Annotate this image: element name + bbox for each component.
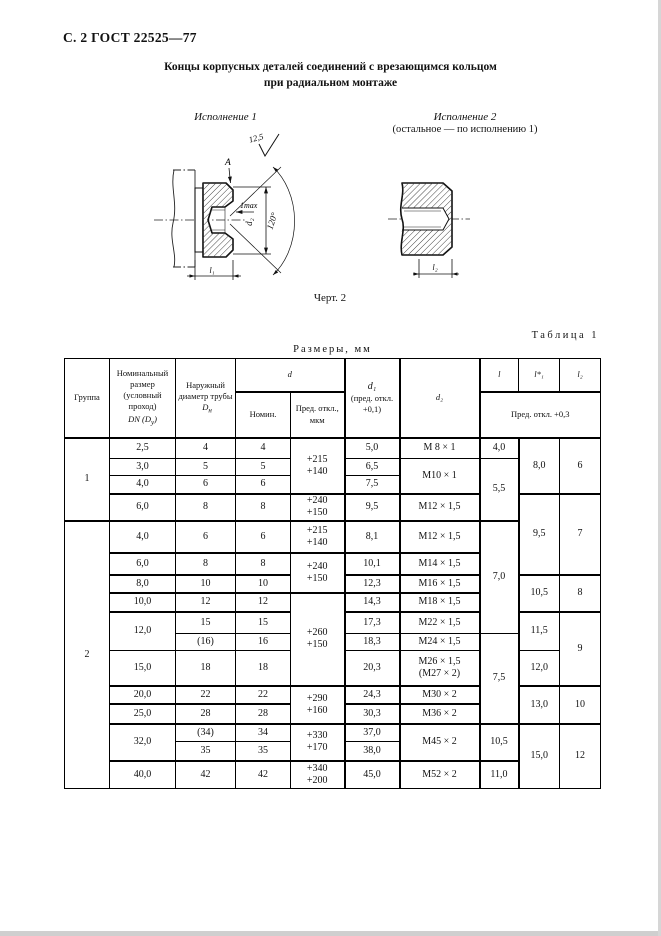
dimensions-table: Группа Номинальный размер (условный прох… [64,358,601,789]
cell-d1: 38,0 [345,742,400,761]
cell-d-nom: 6 [236,521,291,553]
col-header-nominal: Номинальный размер (условный проход) DN … [110,359,176,438]
svg-text:d₂: d₂ [244,218,254,226]
dimension-l2: l₂ [413,259,459,278]
col-header-d-deviation: Пред. откл., мкм [291,392,345,438]
cell-d-nom: 35 [236,742,291,761]
figure-caption: Черт. 2 [270,292,390,304]
header-row-1: Группа Номинальный размер (условный прох… [65,359,601,392]
cell-nominal: 12,0 [110,612,176,651]
cell-l2: 6 [560,438,601,494]
col-header-l1: l*₁ [519,359,560,392]
cell-d1: 10,1 [345,553,400,575]
housing-phantom-outline [172,170,195,267]
col-header-l-deviation: Пред. откл. +0,3 [480,392,601,438]
cell-d-nom: 16 [236,634,291,651]
hatch-upper [203,183,233,220]
cell-outer: 22 [176,686,236,704]
cell-nominal: 6,0 [110,494,176,521]
table-row: 20,0 22 22 +290 +160 24,3 М30 × 2 13,0 1… [65,686,601,704]
cell-l1: 10,5 [519,575,560,612]
variant-2-note: (остальное — по исполнению 1) [354,124,576,135]
svg-text:1max: 1max [240,201,258,210]
cell-l2: 12 [560,724,601,789]
cell-outer: (34) [176,724,236,742]
cell-d-nom: 4 [236,438,291,459]
cell-d-nom: 8 [236,494,291,521]
cell-nominal: 8,0 [110,575,176,593]
cell-d-nom: 22 [236,686,291,704]
cell-d1: 17,3 [345,612,400,634]
cell-d-dev: +330 +170 [291,724,345,761]
cell-d1: 37,0 [345,724,400,742]
cell-d1: 24,3 [345,686,400,704]
cell-l1: 8,0 [519,438,560,494]
hatch-lower [203,220,233,257]
cell-d2: М14 × 1,5 [400,553,480,575]
cell-d-dev: +240 +150 [291,494,345,521]
cell-l: 10,5 [480,724,519,761]
table-units-note: Размеры, мм [65,344,600,355]
cell-d-nom: 42 [236,761,291,789]
cell-outer: (16) [176,634,236,651]
drawing-variant-1: 1max А 12,5 d₂ 120° l₁ [140,128,310,308]
dimension-one-max: 1max [236,201,258,212]
table-caption: Таблица 1 [532,330,599,341]
cell-d2: М22 × 1,5 [400,612,480,634]
cell-d2: М26 × 1,5 (М27 × 2) [400,651,480,686]
page-header: С. 2 ГОСТ 22525—77 [63,30,197,46]
cell-d-nom: 5 [236,459,291,476]
cell-l: 5,5 [480,459,519,521]
cell-d-nom: 10 [236,575,291,593]
cell-outer: 28 [176,704,236,724]
cell-l2: 8 [560,575,601,612]
cell-d-dev: +240 +150 [291,553,345,593]
cell-d2: М24 × 1,5 [400,634,480,651]
svg-text:l₁: l₁ [209,265,214,275]
cell-l2: 7 [560,494,601,575]
cell-d2: М12 × 1,5 [400,521,480,553]
table-row: 1 2,5 4 4 +215 +140 5,0 М 8 × 1 4,0 8,0 … [65,438,601,459]
col-header-d2: d₂ [400,359,480,438]
cell-d-nom: 18 [236,651,291,686]
cell-d1: 9,5 [345,494,400,521]
table-row: 6,0 8 8 +240 +150 9,5 М12 × 1,5 9,5 7 [65,494,601,521]
cell-outer: 5 [176,459,236,476]
cell-nominal: 10,0 [110,593,176,612]
cell-outer: 15 [176,612,236,634]
cell-nominal: 4,0 [110,521,176,553]
cell-d1: 18,3 [345,634,400,651]
cell-nominal: 15,0 [110,651,176,686]
nut-section [195,183,233,257]
body-section [401,183,452,255]
cell-d1: 30,3 [345,704,400,724]
svg-text:l₂: l₂ [432,262,437,272]
cell-outer: 35 [176,742,236,761]
cell-nominal: 32,0 [110,724,176,761]
cell-outer: 10 [176,575,236,593]
cell-nominal: 3,0 [110,459,176,476]
variant-1-label: Исполнение 1 [148,111,303,123]
cell-d2: М45 × 2 [400,724,480,761]
dimension-l1: l₁ [187,260,241,280]
cell-d-nom: 12 [236,593,291,612]
cell-d1: 45,0 [345,761,400,789]
drawing-variant-2: l₂ [382,150,492,285]
dimension-d2: d₂ [233,187,271,254]
variant-2-label: Исполнение 2 [384,111,546,123]
cell-nominal: 20,0 [110,686,176,704]
cell-d2: М30 × 2 [400,686,480,704]
cell-l1: 12,0 [519,651,560,686]
dimension-angle-120: 120° [230,167,295,275]
cell-outer: 4 [176,438,236,459]
cell-outer: 6 [176,521,236,553]
doc-title-line2: при радиальном монтаже [0,76,661,92]
cell-l: 4,0 [480,438,519,459]
cell-outer: 8 [176,494,236,521]
cell-d-nom: 34 [236,724,291,742]
col-header-d-nominal: Номин. [236,392,291,438]
cell-l1: 9,5 [519,494,560,575]
svg-text:А: А [224,158,231,168]
cell-l: 7,0 [480,521,519,634]
cell-l1: 13,0 [519,686,560,724]
cell-d2: М52 × 2 [400,761,480,789]
doc-title-line1: Концы корпусных деталей соединений с вре… [0,60,661,76]
cell-nominal: 6,0 [110,553,176,575]
cell-outer: 12 [176,593,236,612]
cell-l: 11,0 [480,761,519,789]
cell-d2: М18 × 1,5 [400,593,480,612]
col-header-d: d [236,359,345,392]
d1-note: (пред. откл. +0,1) [351,393,393,414]
cell-nominal: 25,0 [110,704,176,724]
roughness-icon: 12,5 [248,131,279,156]
cell-d1: 20,3 [345,651,400,686]
cell-d2: М 8 × 1 [400,438,480,459]
col-header-group: Группа [65,359,110,438]
cell-d1: 7,5 [345,476,400,494]
cell-outer: 8 [176,553,236,575]
svg-text:12,5: 12,5 [248,131,265,145]
cell-l1: 11,5 [519,612,560,651]
cell-d2: М36 × 2 [400,704,480,724]
cell-d1: 12,3 [345,575,400,593]
cell-l2: 10 [560,686,601,724]
cell-outer: 42 [176,761,236,789]
cell-l1: 15,0 [519,724,560,789]
cell-nominal: 4,0 [110,476,176,494]
cell-outer: 18 [176,651,236,686]
nominal-symbol: DN (Dу) [112,414,173,428]
cell-d-nom: 6 [236,476,291,494]
cell-d-nom: 8 [236,553,291,575]
cell-d2: М10 × 1 [400,459,480,494]
cell-d-dev: +215 +140 [291,438,345,494]
cell-d-nom: 28 [236,704,291,724]
cell-l2: 9 [560,612,601,686]
cell-outer: 6 [176,476,236,494]
cell-d1: 5,0 [345,438,400,459]
outer-header-text: Наружный диаметр трубы [178,380,232,401]
cell-d-dev: +340 +200 [291,761,345,789]
table-row: 32,0 (34) 34 +330 +170 37,0 М45 × 2 10,5… [65,724,601,742]
gost-document-page: С. 2 ГОСТ 22525—77 Концы корпусных детал… [0,0,661,936]
cell-l: 7,5 [480,634,519,724]
break-line-wavy [172,170,175,267]
doc-title: Концы корпусных деталей соединений с вре… [0,60,661,91]
view-a-label: А [224,158,231,183]
d1-symbol: d₁ [348,380,397,393]
cell-d1: 8,1 [345,521,400,553]
cell-group: 2 [65,521,110,789]
cell-d-dev: +290 +160 [291,686,345,724]
cell-d-nom: 15 [236,612,291,634]
col-header-l: l [480,359,519,392]
cell-nominal: 40,0 [110,761,176,789]
svg-text:120°: 120° [265,211,280,231]
cell-d1: 6,5 [345,459,400,476]
col-header-l2: l₂ [560,359,601,392]
cell-group: 1 [65,438,110,521]
col-header-outer-dia: Наружный диаметр трубы Dн [176,359,236,438]
nominal-header-text: Номинальный размер (условный проход) [117,368,168,411]
cell-d-dev: +260 +150 [291,593,345,686]
cell-nominal: 2,5 [110,438,176,459]
cell-d2: М12 × 1,5 [400,494,480,521]
col-header-d1: d₁ (пред. откл. +0,1) [345,359,400,438]
cell-d-dev: +215 +140 [291,521,345,553]
cell-d1: 14,3 [345,593,400,612]
cell-d2: М16 × 1,5 [400,575,480,593]
